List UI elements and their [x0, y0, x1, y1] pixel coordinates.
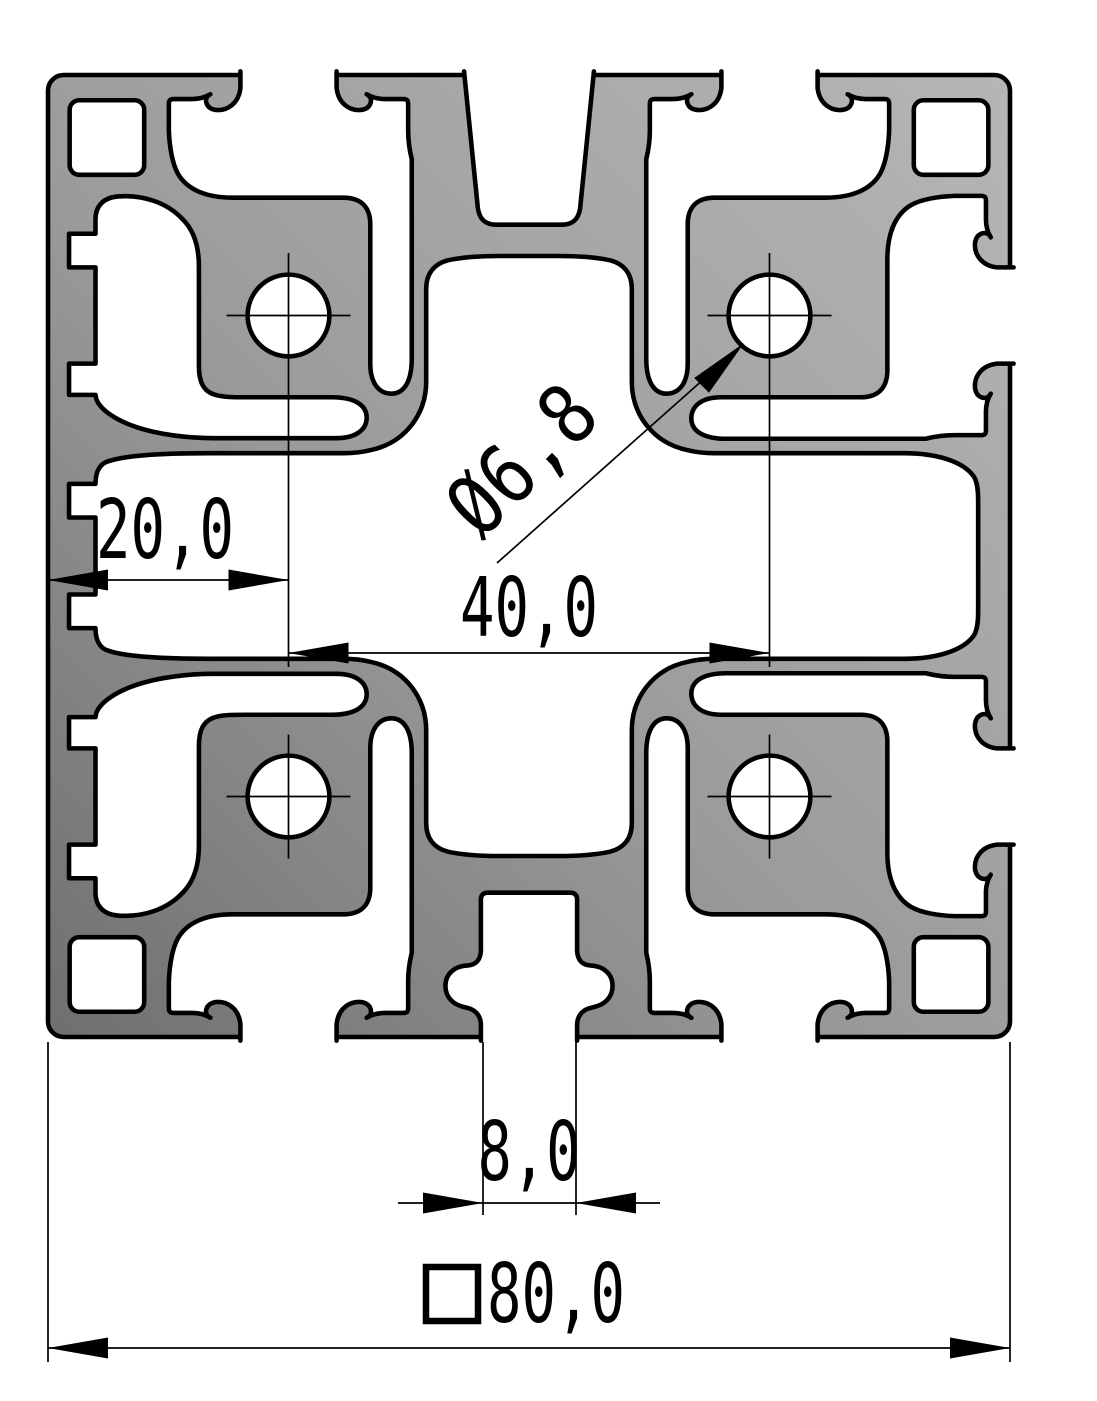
dim-label-80: 80,0	[487, 1247, 625, 1342]
arrow-80-left	[48, 1338, 108, 1359]
square-symbol	[426, 1267, 478, 1321]
top-recess-fill	[464, 71, 594, 224]
arrow-80-right	[950, 1338, 1010, 1359]
dim-label-40: 40,0	[460, 561, 598, 656]
corner-hole-tl	[70, 100, 145, 175]
dim-label-20: 20,0	[96, 483, 234, 578]
dim-label-8: 8,0	[478, 1105, 581, 1200]
drawing-canvas: 20,0 40,0 Ø6,8 8,0 80,0	[0, 0, 1097, 1401]
arrow-8-left	[423, 1193, 483, 1214]
arrow-8-right	[576, 1193, 636, 1214]
corner-hole-br	[914, 937, 989, 1012]
profile-drawing-svg: 20,0 40,0 Ø6,8 8,0 80,0	[0, 0, 1097, 1401]
corner-hole-tr	[914, 100, 989, 175]
corner-hole-bl	[70, 937, 145, 1012]
